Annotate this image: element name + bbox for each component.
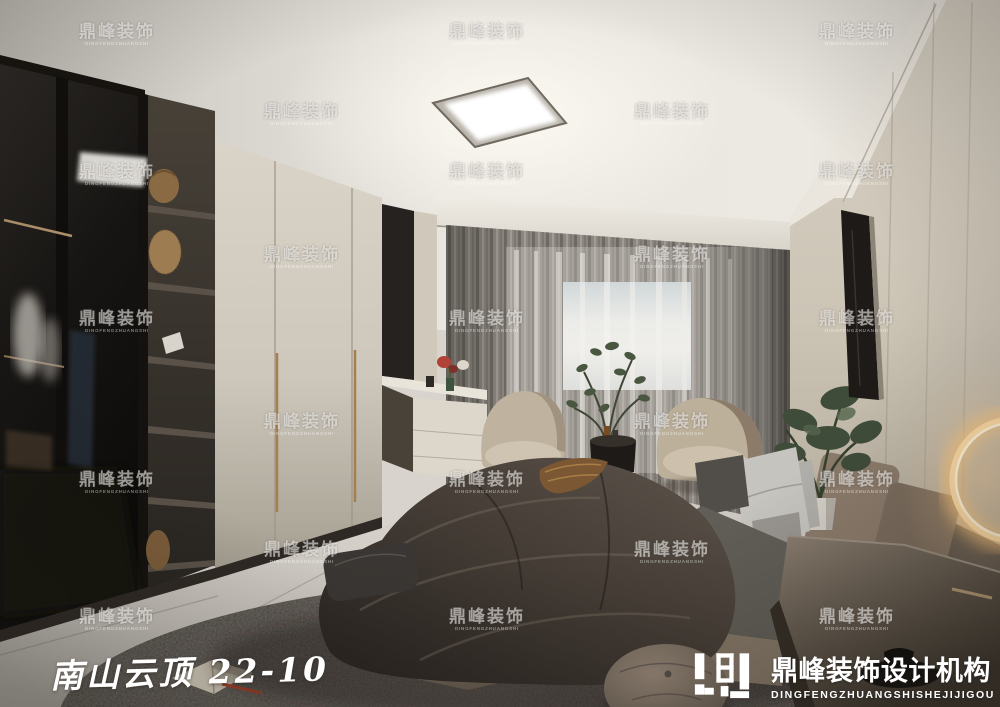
- interior-render-bedroom: 鼎峰装饰DINGFENGZHUANGSHI鼎峰装饰DINGFENGZHUANGS…: [0, 0, 1000, 707]
- vanity-shadow-side: [382, 385, 413, 472]
- scene-graphic: [0, 0, 1000, 707]
- navy-garment-reflection: [68, 330, 95, 470]
- vanity-drawers: [413, 398, 487, 482]
- niche-opening: [382, 204, 414, 380]
- red-flowers: [437, 356, 451, 368]
- wardrobe-doors: [215, 140, 382, 568]
- red-flowers: [448, 365, 458, 373]
- folded-clothes-reflection: [6, 430, 52, 470]
- hanging-shirt-reflection: [40, 318, 60, 382]
- hanging-shirt-reflection: [13, 293, 43, 377]
- table-top: [590, 435, 636, 447]
- lamp-reflection: [77, 152, 148, 187]
- project-title: 南山云顶 22-10: [49, 642, 329, 697]
- perfume-bottle: [426, 376, 434, 387]
- green-bottle: [446, 378, 454, 391]
- niche-side-panel: [414, 211, 437, 390]
- brand-logo-icon: [688, 647, 762, 701]
- white-flowers: [457, 360, 469, 370]
- door-panels: [215, 140, 382, 568]
- brand-name-cn: 鼎峰装饰设计机构: [771, 658, 991, 686]
- wardrobe-shelves: [146, 95, 215, 590]
- brand-name-en: DINGFENGZHUANGSHISHEJIJIGOU: [771, 689, 995, 701]
- brand-logo: 鼎峰装饰设计机构 DINGFENGZHUANGSHISHEJIJIGOU: [688, 647, 995, 701]
- handbag-brown: [146, 530, 170, 570]
- ottoman-button: [665, 671, 672, 678]
- wardrobe-glass: [0, 55, 148, 632]
- brand-logo-text: 鼎峰装饰设计机构 DINGFENGZHUANGSHISHEJIJIGOU: [771, 658, 995, 701]
- bed-reflection: [0, 470, 140, 616]
